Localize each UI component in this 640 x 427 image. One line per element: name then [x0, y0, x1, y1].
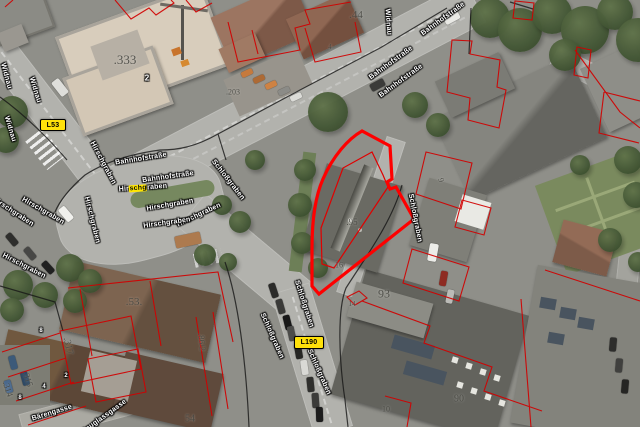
highlight-mark: schg [129, 184, 148, 192]
parcel-number-label: .86/2 [196, 332, 208, 351]
tree-canopy [229, 211, 251, 233]
parcel-number-label: .203 [226, 88, 240, 97]
parcel-number-label: .16 [333, 261, 343, 270]
car [427, 243, 439, 262]
roof-skylight [498, 399, 505, 406]
tree-canopy [402, 92, 428, 118]
marker-number-label: 2 [64, 373, 67, 379]
marker-number-label: 8 [18, 395, 21, 401]
tree-canopy [32, 282, 58, 308]
tree-canopy [294, 159, 316, 181]
parcel-number-label: 90 [454, 394, 464, 405]
tree-canopy [549, 39, 581, 71]
parcel-number-label: .53. [126, 296, 143, 308]
tree-canopy [291, 232, 313, 254]
car [621, 379, 629, 394]
parcel-number-label: 10 [382, 405, 390, 414]
tree-canopy [426, 113, 450, 137]
parcel-number-label: 54 [185, 414, 195, 425]
tree-canopy [63, 289, 87, 313]
parcel-number-label: .333 [114, 52, 137, 68]
highlight-post: raben [147, 183, 168, 191]
car [5, 232, 19, 247]
car [23, 246, 37, 261]
route-badge-l53[interactable]: L53 [40, 119, 66, 131]
parcel-number-label: 93 [378, 287, 390, 302]
parcel-number-label: 4 [328, 43, 332, 51]
building-bottom-right-corner [510, 265, 640, 427]
marker-number-label: 2 [145, 74, 149, 83]
tree-canopy [614, 146, 640, 174]
parcel-number-label: 14 [349, 300, 356, 308]
tree-canopy [219, 253, 237, 271]
car [439, 271, 448, 287]
car [311, 393, 319, 408]
tree-canopy [308, 92, 348, 132]
parcel-number-label: .317 [61, 336, 75, 355]
map-canvas[interactable]: WidnauWidnauWidnauWidnauBahnhofstraßeBah… [0, 0, 640, 427]
tree-canopy [245, 150, 265, 170]
car [609, 337, 617, 352]
marker-number-label: 4 [42, 384, 45, 390]
tree-canopy [570, 155, 590, 175]
tree-canopy [288, 193, 312, 217]
rooftop-vent [358, 228, 362, 232]
tree-canopy [0, 298, 24, 322]
street-label-widnau: Widnau [384, 9, 393, 36]
marker-number-label: 8 [39, 328, 42, 334]
parcel-number-label: .95 [346, 217, 357, 227]
car [306, 377, 315, 393]
car [615, 358, 623, 373]
tree-canopy [194, 244, 216, 266]
tree-canopy [78, 269, 102, 293]
car [316, 407, 324, 422]
tree-canopy [3, 270, 33, 300]
tree-canopy [598, 228, 622, 252]
route-badge-l190[interactable]: L190 [294, 336, 324, 349]
parcel-number-label: .44 [349, 9, 363, 21]
